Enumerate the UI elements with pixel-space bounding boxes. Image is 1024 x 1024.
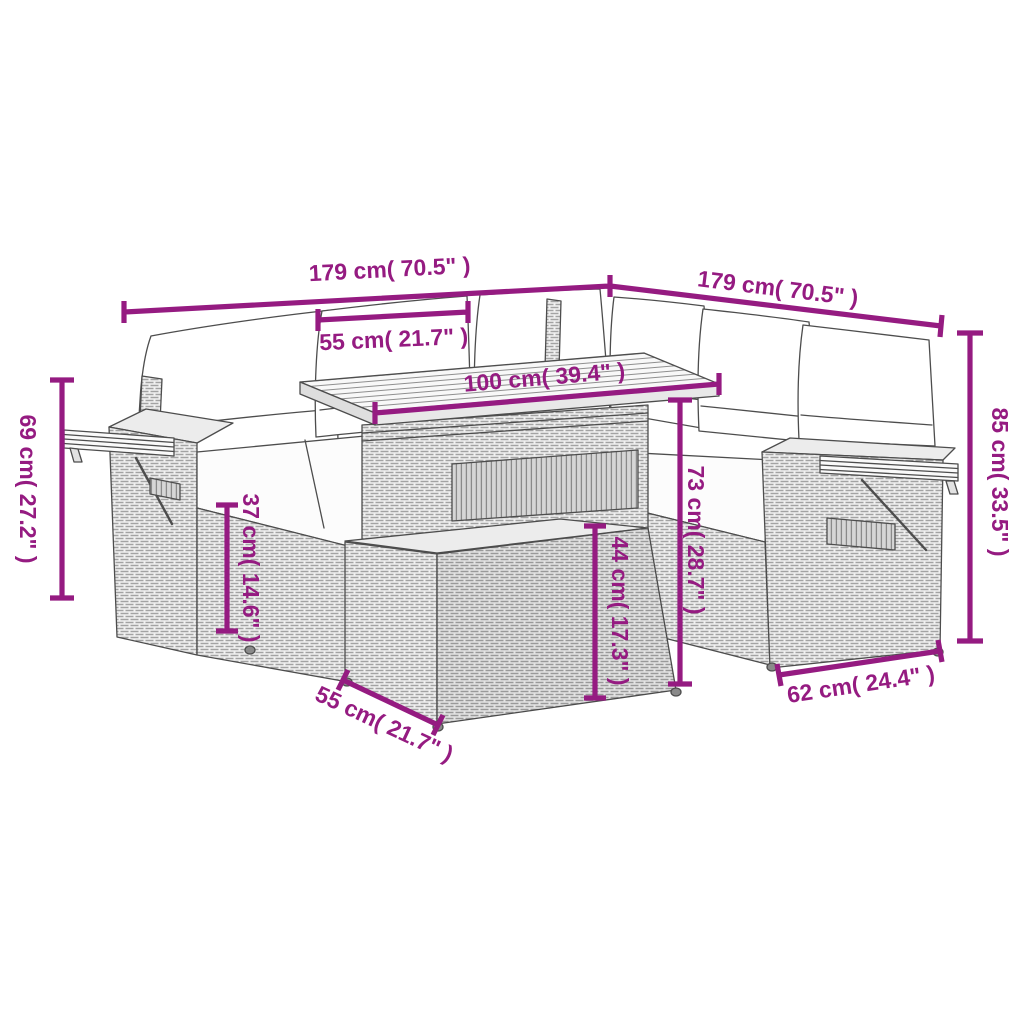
dimension-label-total-height: 85 cm( 33.5" ) (987, 408, 1013, 557)
dimension-label-armrest-height: 69 cm( 27.2" ) (15, 415, 41, 564)
right-armrest-inset (827, 518, 895, 550)
right-tray-bracket (946, 481, 958, 494)
dimension-label-seat-height: 37 cm( 14.6" ) (238, 494, 264, 643)
left-tray-bracket (70, 448, 82, 462)
right-armrest-face (762, 452, 943, 668)
dimension-label-sofa-left-width: 179 cm( 70.5" ) (308, 252, 471, 286)
foot (671, 688, 681, 696)
dimension-line-total-height (957, 333, 983, 641)
dimension-label-table-height: 73 cm( 28.7" ) (683, 466, 709, 615)
dimension-line-armrest-height (50, 380, 74, 598)
footstool-right-face-shade (437, 528, 676, 724)
center-frame-post (545, 299, 561, 370)
dimension-label-seat-depth: 62 cm( 24.4" ) (785, 660, 936, 708)
dimension-label-footstool-height: 44 cm( 17.3" ) (607, 537, 633, 686)
back-cushion-6 (798, 325, 935, 446)
sofa-set-dimension-diagram: 179 cm( 70.5" ) 179 cm( 70.5" ) 55 cm( 2… (0, 0, 1024, 1024)
sofa-set-line-art (64, 289, 958, 731)
product-dimension-image: 179 cm( 70.5" ) 179 cm( 70.5" ) 55 cm( 2… (0, 0, 1024, 1024)
foot (245, 646, 255, 654)
left-armrest-face (109, 427, 197, 655)
